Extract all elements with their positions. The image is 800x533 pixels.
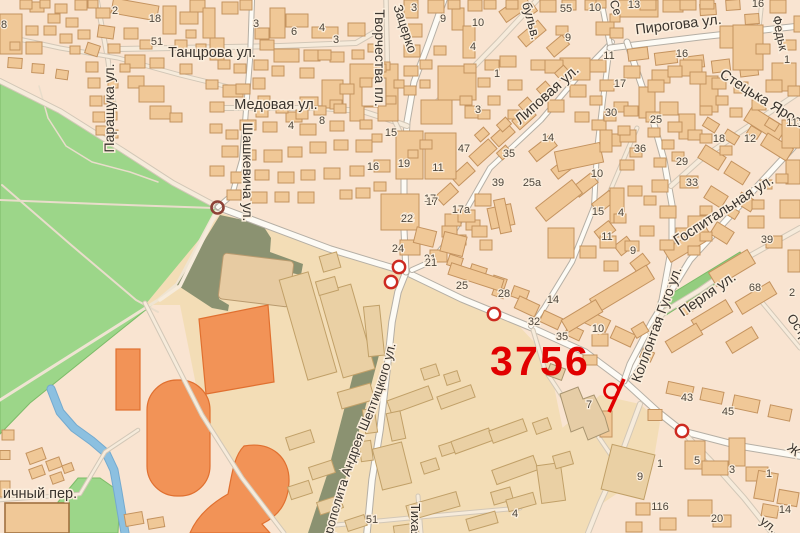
svg-text:55: 55 — [560, 3, 572, 15]
svg-text:2: 2 — [789, 287, 795, 299]
svg-text:14: 14 — [779, 504, 791, 516]
svg-text:11: 11 — [432, 162, 443, 174]
svg-text:4: 4 — [618, 207, 624, 219]
svg-text:Шашкевича ул.: Шашкевича ул. — [240, 123, 256, 222]
svg-text:13: 13 — [628, 0, 640, 11]
svg-text:3: 3 — [475, 104, 481, 116]
svg-text:17а: 17а — [452, 204, 471, 216]
svg-text:3: 3 — [729, 464, 735, 476]
svg-text:6: 6 — [291, 26, 297, 38]
svg-text:1: 1 — [494, 68, 500, 80]
svg-text:18: 18 — [149, 13, 161, 25]
svg-text:36: 36 — [634, 143, 646, 155]
svg-text:51: 51 — [151, 36, 163, 48]
svg-text:9: 9 — [630, 245, 636, 257]
svg-text:9: 9 — [440, 13, 446, 25]
svg-text:33: 33 — [686, 177, 698, 189]
svg-text:Паращука ул.: Паращука ул. — [101, 64, 117, 153]
svg-text:20: 20 — [711, 513, 723, 525]
svg-text:68: 68 — [749, 282, 761, 294]
svg-text:16: 16 — [367, 161, 379, 173]
svg-text:51: 51 — [366, 514, 378, 526]
svg-text:3: 3 — [411, 2, 417, 14]
svg-text:3: 3 — [333, 34, 339, 46]
svg-text:25: 25 — [650, 114, 662, 126]
svg-text:Медовая ул.: Медовая ул. — [234, 97, 317, 113]
svg-text:12: 12 — [744, 133, 756, 145]
svg-text:35: 35 — [503, 148, 515, 160]
svg-text:25а: 25а — [523, 177, 542, 189]
svg-text:14: 14 — [542, 132, 554, 144]
svg-text:3756: 3756 — [490, 338, 590, 384]
svg-text:4: 4 — [470, 41, 476, 53]
svg-text:5: 5 — [694, 455, 700, 467]
svg-text:17: 17 — [614, 78, 626, 90]
svg-text:9: 9 — [565, 32, 571, 44]
svg-text:Танцрова ул.: Танцрова ул. — [168, 45, 256, 61]
svg-text:10: 10 — [472, 17, 484, 29]
svg-text:4: 4 — [288, 120, 294, 132]
svg-text:15: 15 — [385, 127, 397, 139]
svg-text:1: 1 — [657, 458, 663, 470]
svg-text:18: 18 — [713, 133, 725, 145]
svg-text:1: 1 — [784, 54, 790, 66]
svg-text:14: 14 — [547, 294, 559, 306]
svg-text:10: 10 — [592, 323, 604, 335]
svg-text:11: 11 — [603, 50, 614, 62]
svg-text:39: 39 — [761, 234, 773, 246]
svg-text:22: 22 — [401, 213, 413, 225]
svg-text:8: 8 — [319, 115, 325, 127]
svg-text:2: 2 — [112, 5, 118, 17]
svg-text:11: 11 — [601, 231, 612, 243]
svg-text:15: 15 — [592, 206, 604, 218]
svg-text:21: 21 — [425, 257, 437, 269]
svg-text:24: 24 — [392, 243, 404, 255]
svg-text:16: 16 — [676, 48, 688, 60]
svg-text:32: 32 — [528, 316, 540, 328]
svg-text:4: 4 — [319, 22, 325, 34]
svg-text:28: 28 — [498, 288, 510, 300]
svg-text:3: 3 — [253, 18, 259, 30]
svg-text:19: 19 — [398, 158, 410, 170]
svg-text:43: 43 — [681, 392, 693, 404]
svg-text:4: 4 — [512, 508, 518, 520]
svg-text:11: 11 — [786, 117, 797, 129]
svg-text:25: 25 — [456, 280, 468, 292]
svg-text:16: 16 — [752, 0, 764, 10]
svg-text:1: 1 — [766, 468, 772, 480]
svg-text:116: 116 — [651, 501, 669, 513]
svg-text:30: 30 — [605, 107, 617, 119]
svg-text:7: 7 — [586, 399, 592, 411]
svg-text:17: 17 — [426, 196, 438, 208]
svg-text:ичный пер.: ичный пер. — [3, 486, 77, 502]
svg-text:10: 10 — [589, 2, 601, 14]
svg-text:45: 45 — [722, 406, 734, 418]
svg-text:Тихая: Тихая — [408, 503, 423, 533]
svg-text:Творчества пл.: Творчества пл. — [372, 9, 388, 107]
svg-text:9: 9 — [637, 471, 643, 483]
svg-text:8: 8 — [1, 19, 7, 31]
svg-text:29: 29 — [676, 156, 688, 168]
svg-text:47: 47 — [458, 143, 470, 155]
svg-text:39: 39 — [492, 177, 504, 189]
svg-text:10: 10 — [591, 168, 603, 180]
